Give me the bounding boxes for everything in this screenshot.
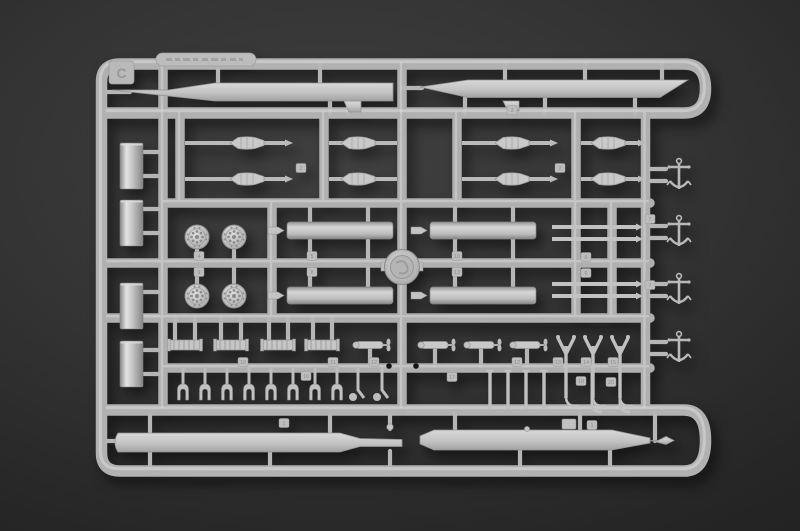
- blade-top-left: [112, 83, 393, 101]
- part-number-label: 1: [590, 423, 593, 429]
- part-number-label: 18: [578, 379, 584, 385]
- torpedo-tube: [287, 287, 393, 304]
- spindle-paravane: [341, 173, 375, 186]
- part-number-label: 10: [240, 360, 246, 366]
- anchor-part: [667, 159, 691, 189]
- hook-davits: [349, 368, 388, 401]
- winch-part: [214, 339, 249, 351]
- anchor-part: [667, 216, 691, 246]
- fork-davit: [178, 368, 189, 400]
- perforated-disc: [222, 225, 246, 249]
- spindle-paravane: [495, 137, 529, 150]
- cylinder-part: [120, 283, 143, 329]
- ring-platform: [381, 250, 423, 285]
- part-number-label: 12: [371, 360, 377, 366]
- perforated-disc: [222, 284, 246, 308]
- anchor-part: [667, 332, 691, 362]
- part-number-label: 11: [330, 360, 336, 366]
- small-block: [562, 419, 576, 429]
- sprue-letter: C: [116, 65, 126, 81]
- cylinder-part: [120, 200, 143, 246]
- fork-davits: [178, 368, 343, 400]
- anchors: [667, 159, 691, 362]
- fork-davit: [288, 368, 299, 400]
- part-number-label: 2: [558, 166, 561, 172]
- part-number-label: 7: [648, 217, 651, 223]
- part-number-label: 5: [310, 254, 313, 260]
- spindle-paravane: [341, 137, 375, 150]
- sprue-photo: C: [0, 0, 800, 531]
- fork-davit: [266, 368, 277, 400]
- part-number-label: 10: [454, 254, 460, 260]
- fork-davit: [222, 368, 233, 400]
- boat-davits: [556, 335, 633, 412]
- ring-inner: [391, 256, 414, 279]
- blade-bottom-right: [420, 430, 650, 450]
- hook-foot: [349, 393, 357, 401]
- part-number-label: 14: [583, 360, 589, 366]
- part-number-label: 6: [584, 255, 587, 261]
- part-number-label: 9: [197, 270, 200, 276]
- propeller-torpedoes: [353, 339, 548, 352]
- spindle-paravane: [495, 173, 529, 186]
- tube-end-cap: [411, 292, 427, 299]
- part-number-label: 15: [610, 360, 616, 366]
- blade-top-right: [420, 80, 688, 98]
- pin: [490, 371, 544, 406]
- part-number-label: 3: [510, 108, 513, 114]
- winch-part: [168, 339, 203, 351]
- small-knob: [524, 426, 529, 431]
- fork-davit: [332, 368, 343, 400]
- cylinder-part: [120, 143, 143, 189]
- fork-davit: [200, 368, 211, 400]
- photo-background: { "scene": { "subject": "Plastic model k…: [0, 0, 800, 531]
- tube-end-cap: [411, 227, 427, 234]
- spindle-paravane: [230, 173, 264, 186]
- part-number-label: 1: [282, 421, 285, 427]
- chain-winches: [168, 339, 340, 351]
- perforated-disc: [185, 284, 209, 308]
- spindle-paravane: [591, 137, 625, 150]
- part-number-label: 17: [449, 375, 455, 381]
- blade-bottom-left: [115, 433, 402, 452]
- tube-end-cap: [268, 227, 284, 234]
- part-number-label: 12: [514, 360, 520, 366]
- part-number-label: 13: [555, 360, 561, 366]
- spindle-paravane: [591, 173, 625, 186]
- winch-part: [305, 339, 340, 351]
- torpedo-tube: [430, 287, 536, 304]
- winch-part: [261, 339, 296, 351]
- torpedo-tube: [430, 222, 536, 239]
- part-number-label: 16: [303, 374, 309, 380]
- spindle-paravane: [230, 137, 264, 150]
- cylinder-part: [120, 341, 143, 387]
- part-number-label: 2: [299, 166, 302, 172]
- pin-parts: [487, 371, 548, 409]
- part-number-label: 8: [310, 270, 313, 276]
- part-number-label: 7: [648, 283, 651, 289]
- part-number-label: 13: [454, 270, 460, 276]
- mounting-hole: [386, 363, 392, 369]
- torpedo-tube: [287, 222, 393, 239]
- mounting-hole: [413, 363, 419, 369]
- part-number-label: 6: [584, 271, 587, 277]
- part-number-label: 4: [197, 254, 200, 260]
- tube-end-cap: [268, 292, 284, 299]
- small-knob: [387, 424, 393, 430]
- anchor-part: [667, 274, 691, 304]
- perforated-disc: [185, 225, 209, 249]
- part-number-label: 20: [608, 380, 614, 386]
- sprue: C: [100, 53, 705, 471]
- fork-davit: [244, 368, 255, 400]
- hook-foot: [373, 393, 381, 401]
